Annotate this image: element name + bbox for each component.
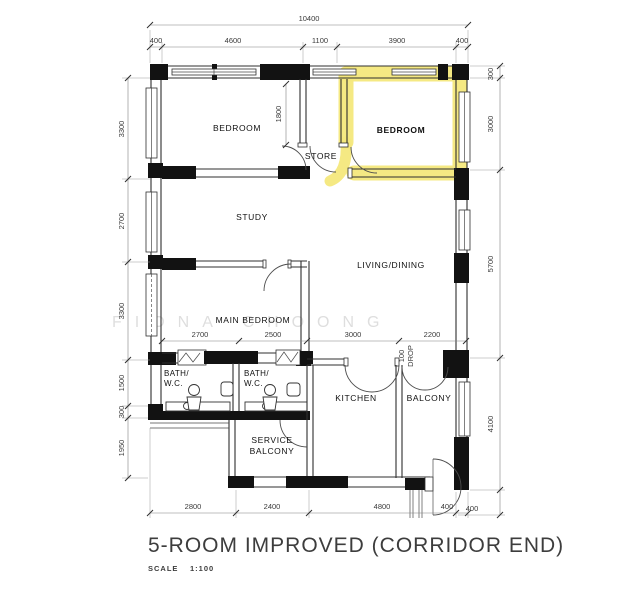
scale-label: SCALE <box>148 564 178 573</box>
kitchen-double-door-arc-icon <box>372 365 399 392</box>
dim-label: 400 <box>150 36 163 45</box>
basin-icon <box>287 383 300 396</box>
room-label-bath1: BATH/ <box>164 369 189 378</box>
toilet-icon <box>189 385 200 396</box>
room-label-kitchen: KITCHEN <box>335 393 377 403</box>
dim-label: 2800 <box>185 502 202 511</box>
dim-bottom: 2800 2400 4800 400 <box>147 428 471 518</box>
page-title: 5-ROOM IMPROVED (CORRIDOR END) <box>148 534 564 557</box>
drop-note: 100 DROP <box>397 345 415 367</box>
dim-label: 1500 <box>117 375 126 392</box>
dim-label: 1950 <box>117 440 126 457</box>
dim-label: 2700 <box>117 213 126 230</box>
dim-label: 1800 <box>274 106 283 123</box>
dim-label: 400 <box>456 36 469 45</box>
dim-label: 4800 <box>374 502 391 511</box>
dim-label: 3000 <box>486 116 495 133</box>
dim-label: 3900 <box>389 36 406 45</box>
dim-top: 10400 400 4600 1100 3900 400 <box>147 14 471 63</box>
room-label-living-dining: LIVING/DINING <box>357 260 425 270</box>
dim-label: 5700 <box>486 256 495 273</box>
toilet-icon <box>187 397 201 410</box>
room-label-bath1: W.C. <box>164 379 183 388</box>
dim-label: 2400 <box>264 502 281 511</box>
drop-label: 100 <box>397 350 406 363</box>
basin-icon <box>221 382 233 396</box>
dim-label: 4100 <box>486 416 495 433</box>
room-label-store: STORE <box>305 151 337 161</box>
dim-store: 1800 <box>274 81 289 148</box>
floor-plan-svg: FIONA CHOONG <box>0 0 643 600</box>
dim-label: 300 <box>486 68 495 81</box>
drop-label: DROP <box>406 345 415 367</box>
left-windows <box>146 88 157 336</box>
toilet-icon <box>265 385 276 396</box>
dim-label: 3300 <box>117 303 126 320</box>
room-label-study: STUDY <box>236 212 268 222</box>
dim-label: 2200 <box>424 330 441 339</box>
kitchen-double-door-arc-icon <box>345 365 372 392</box>
room-label-bath2: BATH/ <box>244 369 269 378</box>
dim-label: 3300 <box>117 121 126 138</box>
floor-plan-page: FIONA CHOONG <box>0 0 643 600</box>
dim-label: 400 <box>466 504 479 513</box>
dim-label: 3000 <box>345 330 362 339</box>
room-label-balcony: BALCONY <box>407 393 452 403</box>
dim-label: 400 <box>441 502 454 511</box>
dim-left: 3300 2700 3300 1500 300 1950 <box>117 75 150 481</box>
room-label-service-balcony: BALCONY <box>250 446 295 456</box>
dim-label: 300 <box>117 406 126 419</box>
dim-label: 1100 <box>312 36 328 45</box>
dim-label: 4600 <box>225 36 242 45</box>
dim-overall-width: 10400 <box>299 14 320 23</box>
room-label-bedroom-highlighted: BEDROOM <box>377 125 426 135</box>
interior-walls <box>150 79 456 518</box>
scale-value: 1:100 <box>190 564 214 573</box>
title-block: 5-ROOM IMPROVED (CORRIDOR END) SCALE 1:1… <box>148 534 564 573</box>
dim-label: 2700 <box>192 330 209 339</box>
room-label-bedroom1: BEDROOM <box>213 123 261 133</box>
main-bedroom-door-arc-icon <box>264 264 291 291</box>
room-label-bath2: W.C. <box>244 379 263 388</box>
room-label-main-bedroom: MAIN BEDROOM <box>216 315 291 325</box>
dim-label: 2500 <box>265 330 282 339</box>
room-label-service-balcony: SERVICE <box>251 435 292 445</box>
dim-interior: 2700 2500 3000 2200 <box>159 330 469 344</box>
balcony-double-door-arc-icon <box>402 367 425 390</box>
toilet-icon <box>263 397 277 410</box>
